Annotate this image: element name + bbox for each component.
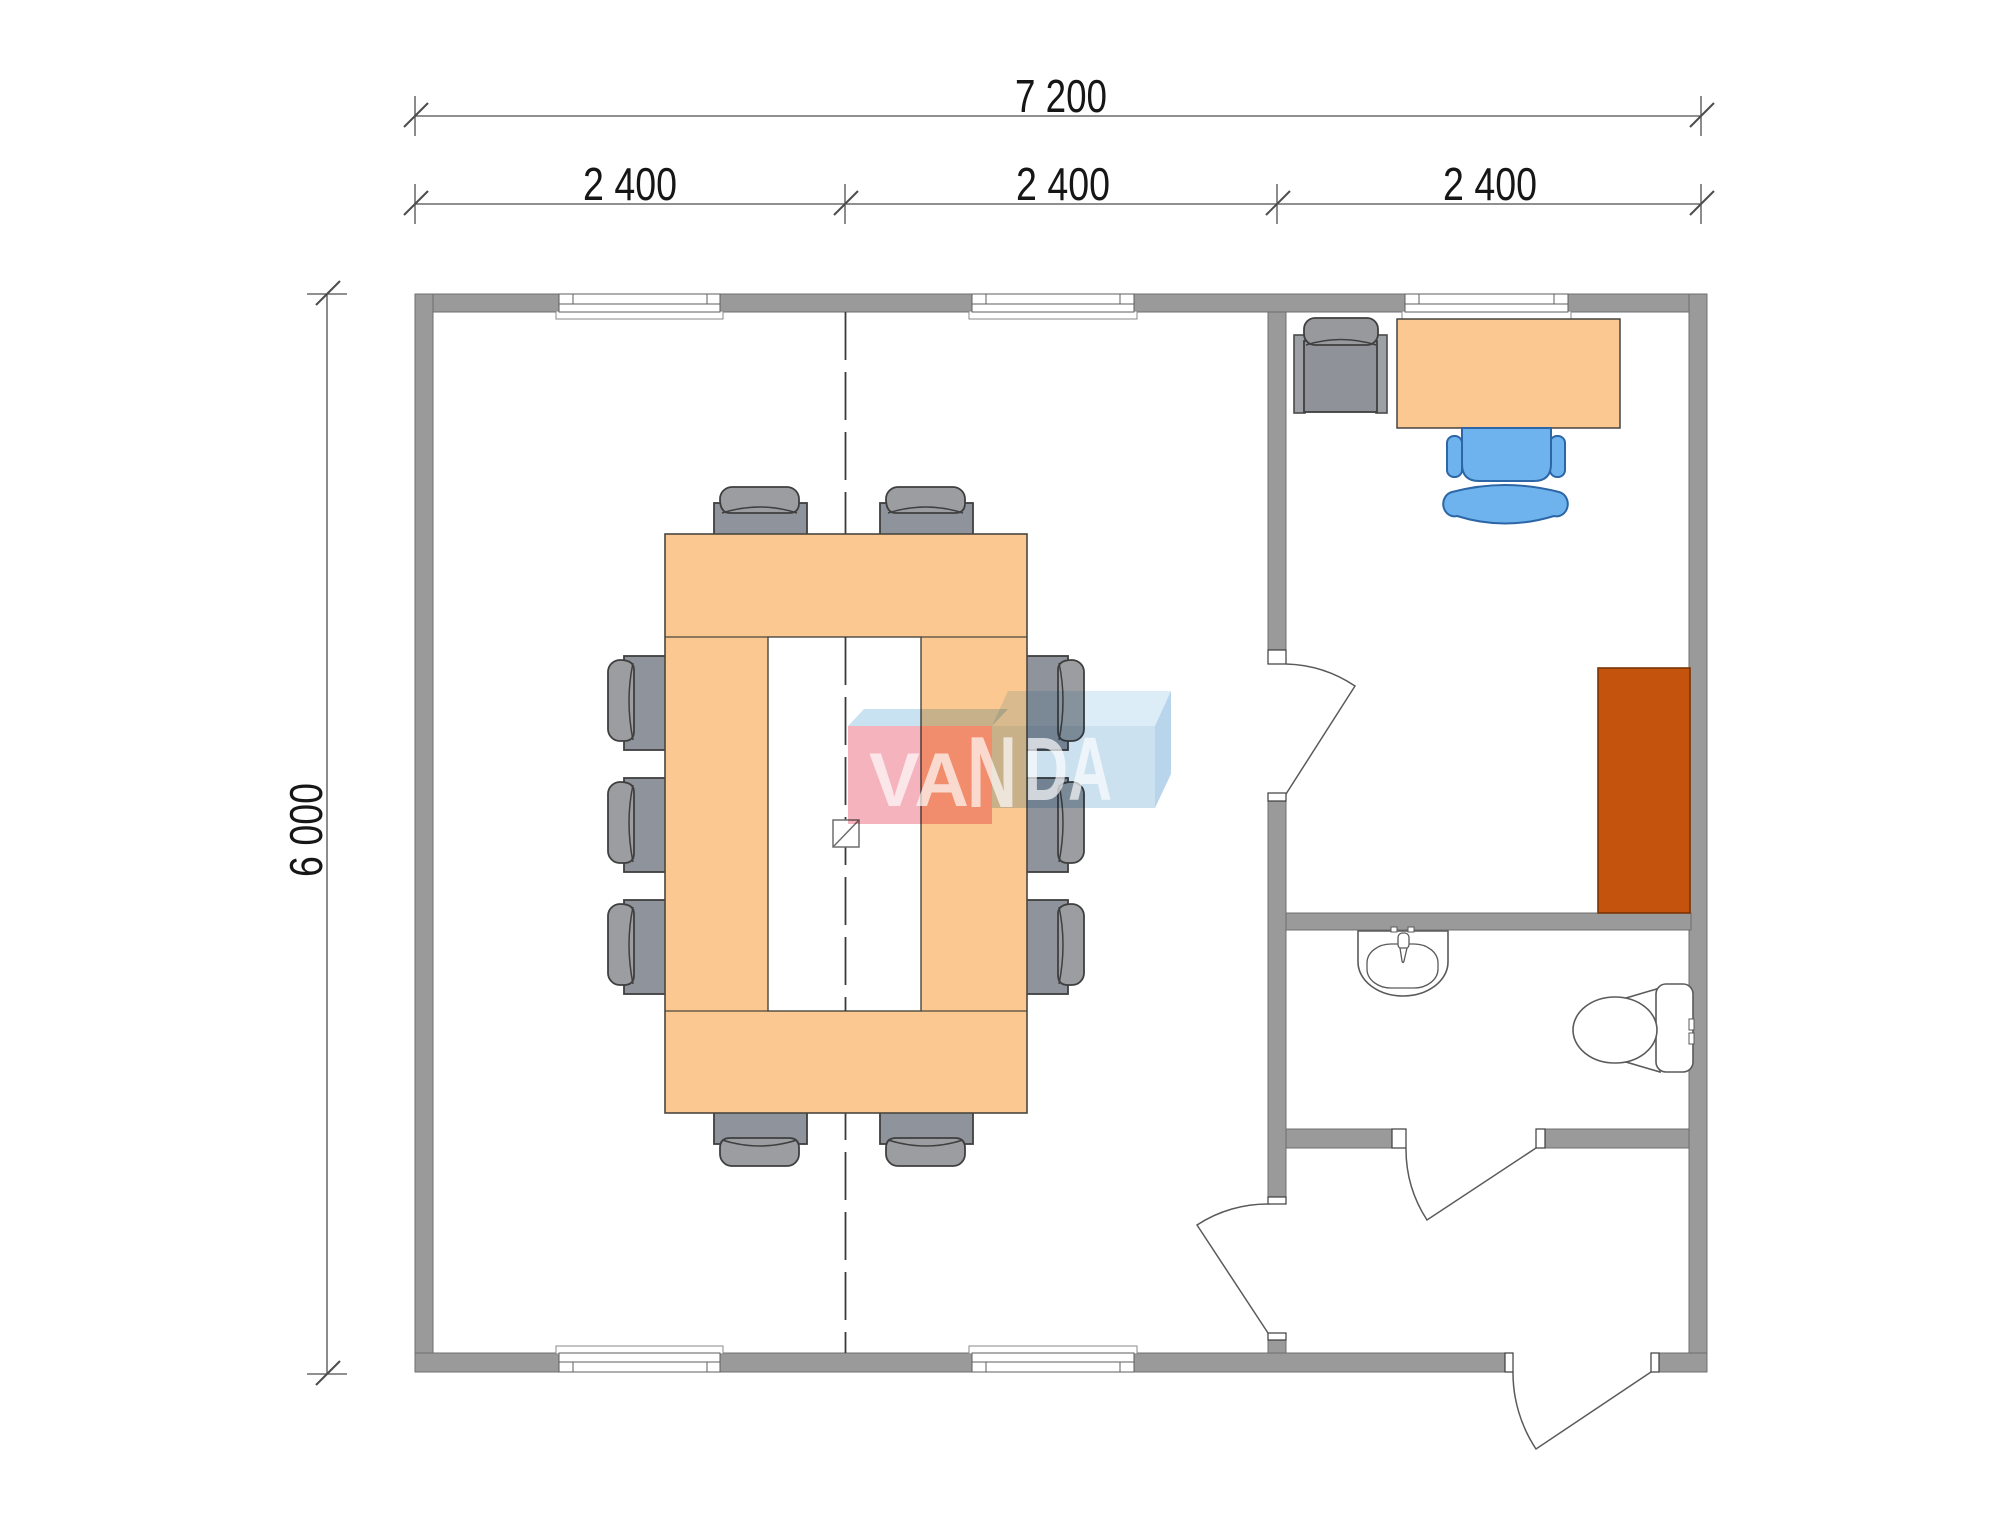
svg-text:7 200: 7 200: [1015, 70, 1107, 122]
svg-text:6 000: 6 000: [280, 783, 332, 877]
svg-text:2 400: 2 400: [1016, 158, 1110, 210]
svg-text:2 400: 2 400: [1443, 158, 1537, 210]
svg-text:VA: VA: [869, 738, 969, 823]
svg-text:DA: DA: [1024, 720, 1112, 820]
svg-text:N: N: [967, 717, 1017, 829]
svg-text:2 400: 2 400: [583, 158, 677, 210]
